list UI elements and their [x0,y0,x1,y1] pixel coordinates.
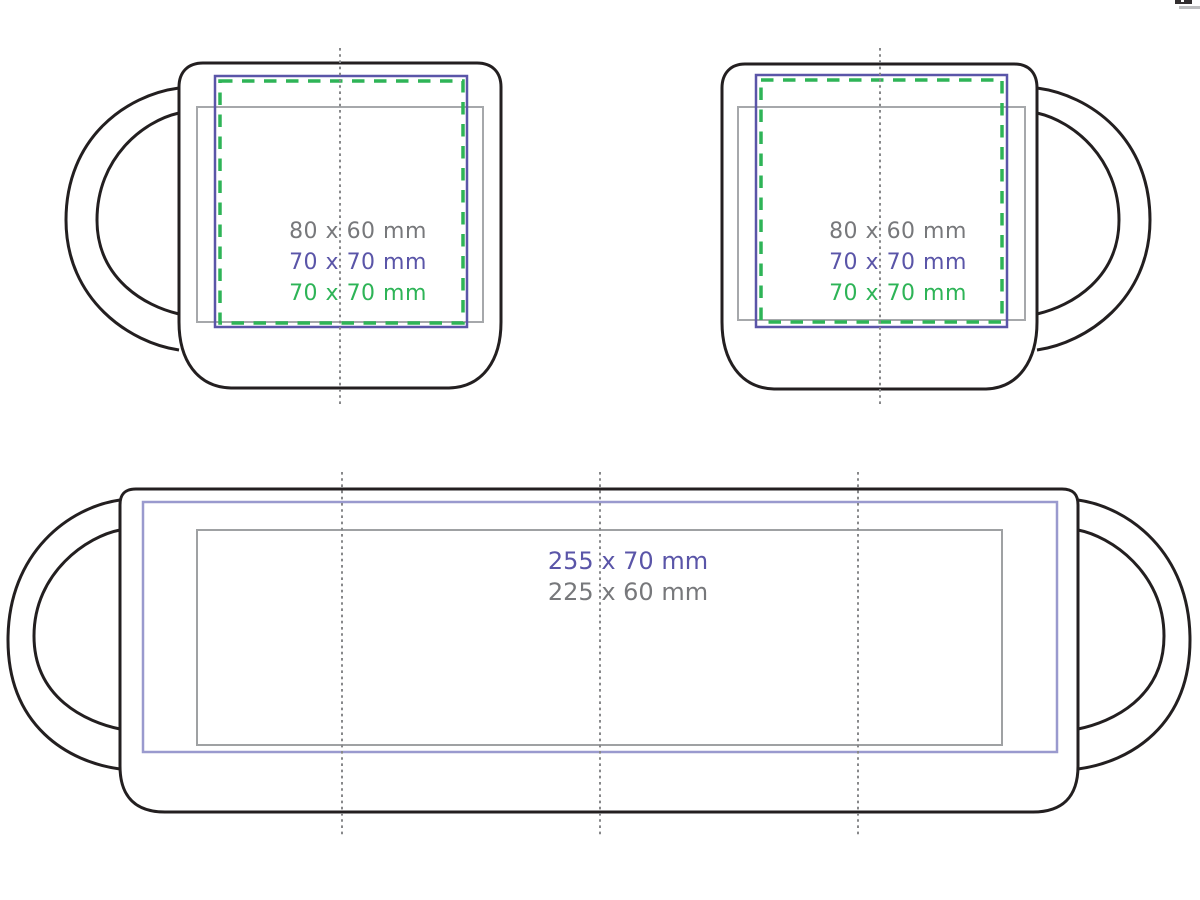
mug-wrap-view [8,472,1190,835]
dimension-label-blue-area: 255 x 70 mm [518,546,738,577]
mug-handle-inner [1037,113,1119,314]
dimension-label-gray-area: 80 x 60 mm [798,216,998,247]
clipped-corner-artifact [1175,0,1200,10]
mug-handle-inner [97,113,179,314]
dimension-label-green-area: 70 x 70 mm [798,278,998,309]
dimension-label-blue-area: 70 x 70 mm [798,247,998,278]
dimension-label-blue-area: 70 x 70 mm [258,247,458,278]
wrap-dimension-labels: 255 x 70 mm 225 x 60 mm [518,546,738,608]
mug-print-area-template: 80 x 60 mm 70 x 70 mm 70 x 70 mm 80 x 60… [0,0,1200,900]
wrap-handle-right-outer [1078,500,1190,769]
wrap-handle-left-outer [8,500,120,769]
dimension-label-gray-area: 225 x 60 mm [518,577,738,608]
clipped-corner-artifact-light-bar [1179,6,1200,9]
mug-handle-outer [66,88,179,350]
dimension-label-green-area: 70 x 70 mm [258,278,458,309]
wrap-handle-left-inner [34,530,120,729]
front-right-dimension-labels: 80 x 60 mm 70 x 70 mm 70 x 70 mm [798,216,998,309]
mug-template-linework [0,0,1200,900]
mug-handle-outer [1037,88,1150,350]
dimension-label-gray-area: 80 x 60 mm [258,216,458,247]
wrap-handle-right-inner [1078,530,1164,729]
clipped-corner-artifact-dark-bar [1175,0,1192,4]
front-left-dimension-labels: 80 x 60 mm 70 x 70 mm 70 x 70 mm [258,216,458,309]
